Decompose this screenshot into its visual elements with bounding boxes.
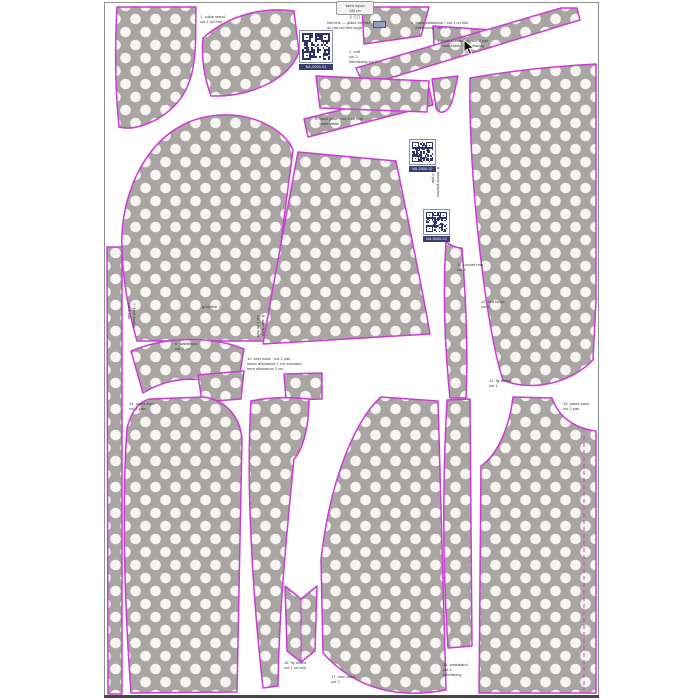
fabric-color-swatch (373, 21, 386, 28)
qr-code-1: NA-0000-01 (299, 30, 333, 70)
cutting-layout-svg (0, 0, 700, 700)
layout-title-line2: 150 cm (349, 9, 360, 13)
annotation-grainline: grainline ↑ (202, 305, 220, 310)
piece-left-edge-strip[interactable] (107, 247, 122, 694)
annotation-collar: 1 collar stand cut 1 on fold (200, 15, 225, 25)
layout-title-line1: fabric layout (346, 4, 365, 8)
annotation-front-bodice: 7 front bodice cut 2 pair (126, 303, 136, 328)
pattern-layout-canvas: fabric layout 150 cm X00 NA-0000-01 NA-0… (0, 0, 700, 700)
annotation-hem-band: 17 hem band cut 2 (331, 675, 355, 685)
annotation-pants-front: 14 pants front cut 2 pair (129, 402, 155, 412)
piece-pants-narrow-right[interactable] (444, 399, 472, 648)
qr-modules-1 (299, 30, 333, 63)
annotation-waistband: 9 waistband cut 2 ↘ (175, 342, 197, 352)
annotation-skirt-front: 8 skirt front cut 1 on fold (255, 315, 265, 337)
qr-caption-1: NA-0000-01 (299, 64, 333, 70)
annotation-back-waistband: 3 back waistband · cut 1 on fold interfa… (411, 21, 468, 31)
qr-modules-3 (423, 209, 450, 235)
annotation-fly-shield: 16 fly shield cut 1 on fold (284, 661, 306, 671)
qr-caption-3: NA-0000-03 (423, 236, 450, 242)
annotation-back-yoke: 5 back yoke · cut 2 on fold main fabric (315, 117, 363, 127)
piece-waistband-arc-3[interactable] (284, 373, 322, 400)
qr-modules-2 (409, 139, 436, 165)
annotation-belt-loops: 12 belt loops cut 6 (481, 300, 505, 310)
annotation-fly-facing: 13 fly facing cut 1 (489, 379, 511, 389)
annotation-skirt-back: 10 skirt back · cut 2 pair seam allowanc… (247, 357, 301, 371)
annotation-pants-back: 15 pants back cut 2 pair (563, 402, 589, 412)
piece-center-top-panel[interactable] (316, 76, 429, 112)
annotation-cuff: 2 cuff cut 2 interfacing cut 2 (349, 50, 377, 64)
annotation-waistband-2: 18 waistband cut 1 interfacing (443, 663, 468, 677)
annotation-fold-note: fold line — place on fold do not cut thi… (327, 21, 370, 31)
piece-pants-front-left[interactable] (124, 397, 242, 693)
annotation-pocket: 11 pocket bag cut 4 (457, 263, 483, 273)
mouse-cursor-icon (463, 40, 475, 56)
qr-code-3: NA-0000-03 (423, 209, 450, 242)
layout-title-box: fabric layout 150 cm (336, 1, 374, 15)
annotation-sleeve-placket: 6 sleeve placket cut 2 pair (430, 167, 440, 197)
page-bottom-edge (104, 695, 599, 698)
